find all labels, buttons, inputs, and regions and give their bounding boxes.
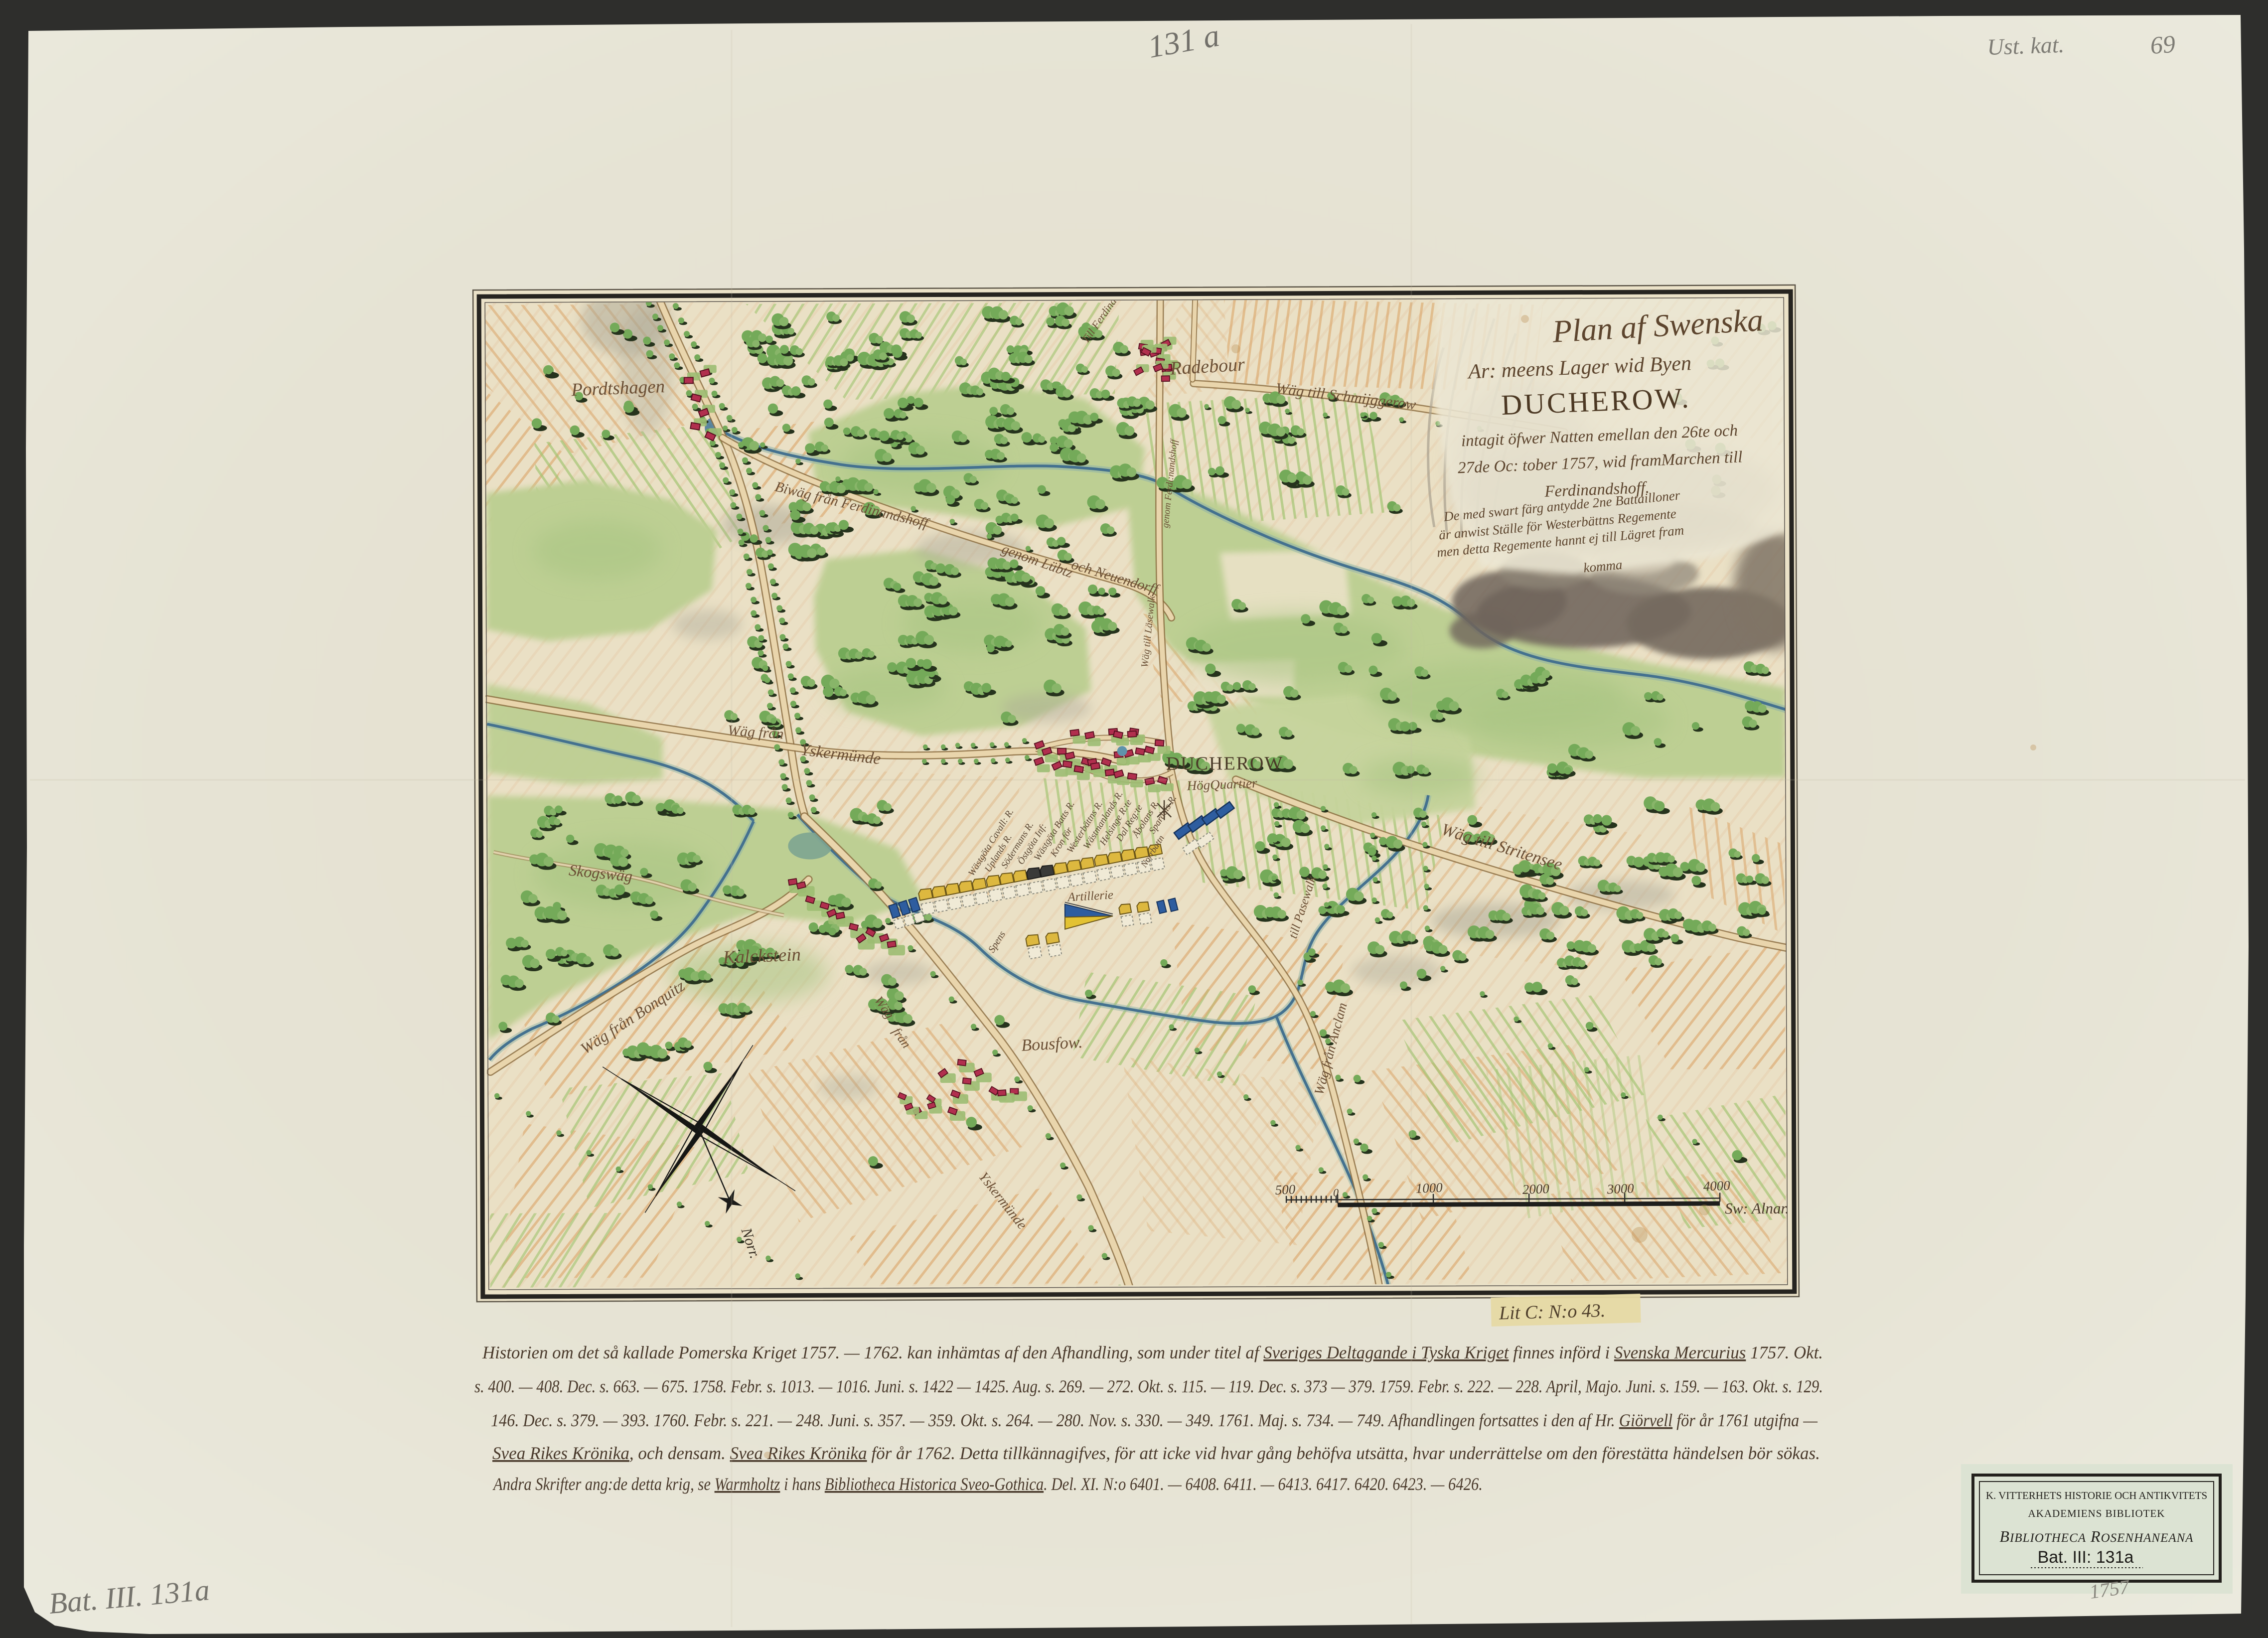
svg-text:Lit C: N:o 43.: Lit C: N:o 43. [1499, 1300, 1606, 1324]
svg-text:2000: 2000 [1522, 1181, 1550, 1197]
svg-text:Pordtshagen: Pordtshagen [571, 376, 665, 400]
svg-text:4000: 4000 [1703, 1178, 1731, 1194]
svg-text:HögQuartier: HögQuartier [1186, 775, 1258, 793]
svg-text:Radebour: Radebour [1169, 354, 1245, 379]
svg-text:Historien om det så kallade Po: Historien om det så kallade Pomerska Kri… [482, 1342, 1823, 1362]
svg-text:Kalckstein: Kalckstein [722, 944, 801, 968]
svg-text:Andra Skrifter ang:de detta kr: Andra Skrifter ang:de detta krig, se War… [492, 1474, 1483, 1494]
svg-text:Sw: Alnar.: Sw: Alnar. [1725, 1199, 1789, 1217]
svg-text:s. 400. — 408. Dec. s. 663. —: s. 400. — 408. Dec. s. 663. — 675. 1758.… [474, 1376, 1823, 1396]
svg-text:3000: 3000 [1606, 1181, 1635, 1196]
svg-text:500: 500 [1275, 1182, 1296, 1197]
svg-text:69: 69 [2149, 30, 2176, 59]
svg-text:K. VITTERHETS HISTORIE OCH ANT: K. VITTERHETS HISTORIE OCH ANTIKVITETS [1986, 1489, 2207, 1501]
svg-text:AKADEMIENS BIBLIOTEK: AKADEMIENS BIBLIOTEK [2028, 1507, 2165, 1519]
svg-text:Svea Rikes Krönika, och densam: Svea Rikes Krönika, och densam. Svea Rik… [492, 1443, 1820, 1463]
svg-text:Artillerie: Artillerie [1066, 888, 1114, 904]
svg-text:Bousfow.: Bousfow. [1021, 1033, 1083, 1055]
svg-text:Bat. III: 131a: Bat. III: 131a [2038, 1548, 2134, 1567]
svg-text:1000: 1000 [1415, 1180, 1443, 1196]
svg-text:Ust. kat.: Ust. kat. [1987, 32, 2065, 60]
svg-text:DUCHEROW: DUCHEROW [1166, 753, 1284, 774]
svg-text:146. Dec. s. 379. — 393. 1760.: 146. Dec. s. 379. — 393. 1760. Febr. s. … [491, 1410, 1818, 1430]
